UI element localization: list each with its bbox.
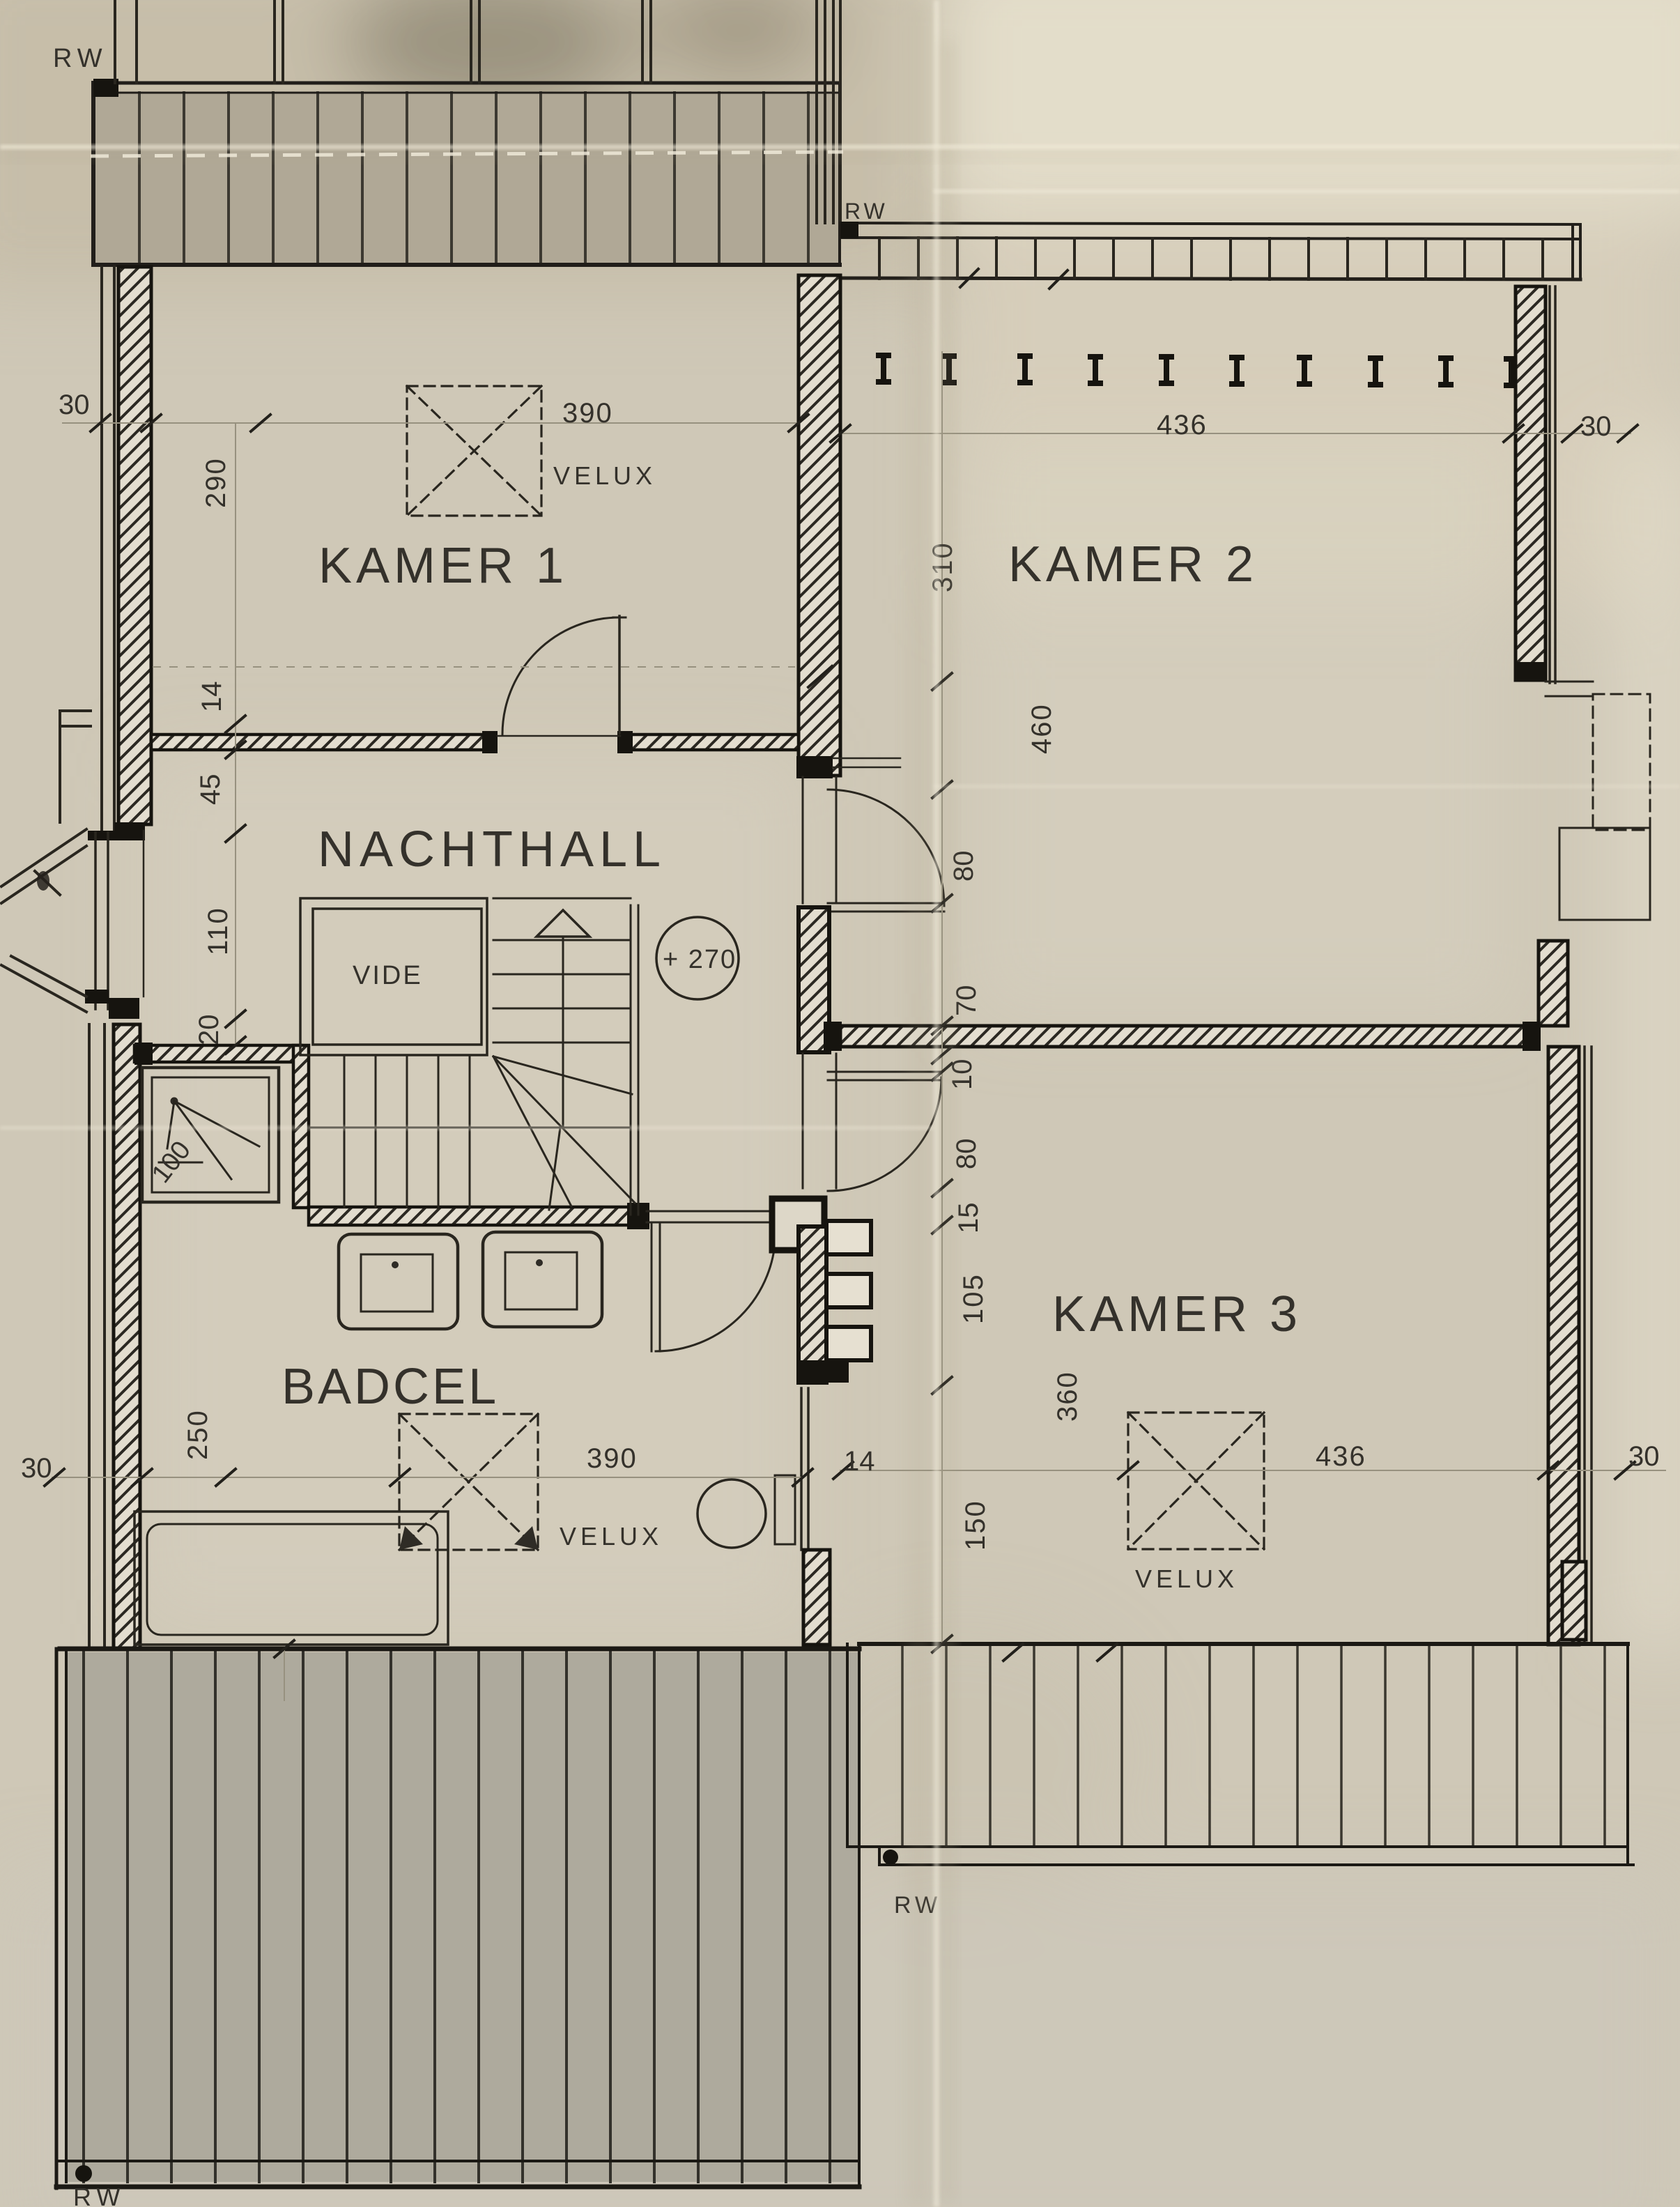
svg-text:460: 460 <box>1026 703 1057 754</box>
svg-text:45: 45 <box>195 774 226 806</box>
svg-text:105: 105 <box>958 1273 989 1324</box>
svg-text:BADCEL: BADCEL <box>282 1359 499 1415</box>
svg-text:30: 30 <box>1580 411 1612 442</box>
svg-text:80: 80 <box>951 1139 982 1170</box>
svg-text:NACHTHALL: NACHTHALL <box>318 822 666 877</box>
svg-text:VELUX: VELUX <box>553 461 656 490</box>
svg-text:KAMER 1: KAMER 1 <box>318 538 568 594</box>
svg-text:360: 360 <box>1052 1371 1083 1422</box>
svg-text:150: 150 <box>960 1500 991 1551</box>
svg-text:20: 20 <box>194 1015 224 1046</box>
svg-text:30: 30 <box>59 390 90 420</box>
svg-text:+ 270: + 270 <box>663 945 737 974</box>
svg-text:30: 30 <box>1628 1441 1660 1472</box>
svg-text:390: 390 <box>587 1443 638 1474</box>
svg-text:RW: RW <box>845 199 888 224</box>
svg-text:436: 436 <box>1316 1441 1366 1472</box>
svg-text:290: 290 <box>201 457 231 508</box>
svg-text:390: 390 <box>562 398 613 429</box>
svg-text:RW: RW <box>73 2183 125 2207</box>
svg-text:RW: RW <box>53 44 108 73</box>
svg-text:KAMER 3: KAMER 3 <box>1052 1286 1302 1342</box>
svg-text:14: 14 <box>196 682 227 713</box>
svg-text:VELUX: VELUX <box>560 1522 663 1551</box>
svg-text:250: 250 <box>183 1409 213 1460</box>
svg-text:VELUX: VELUX <box>1135 1564 1238 1593</box>
svg-text:15: 15 <box>953 1203 984 1234</box>
svg-text:70: 70 <box>951 985 982 1017</box>
svg-text:436: 436 <box>1157 410 1208 440</box>
svg-text:110: 110 <box>203 907 233 955</box>
svg-text:14: 14 <box>844 1446 875 1477</box>
svg-text:30: 30 <box>21 1453 52 1484</box>
svg-text:KAMER 2: KAMER 2 <box>1008 537 1258 592</box>
svg-text:VIDE: VIDE <box>353 961 423 990</box>
